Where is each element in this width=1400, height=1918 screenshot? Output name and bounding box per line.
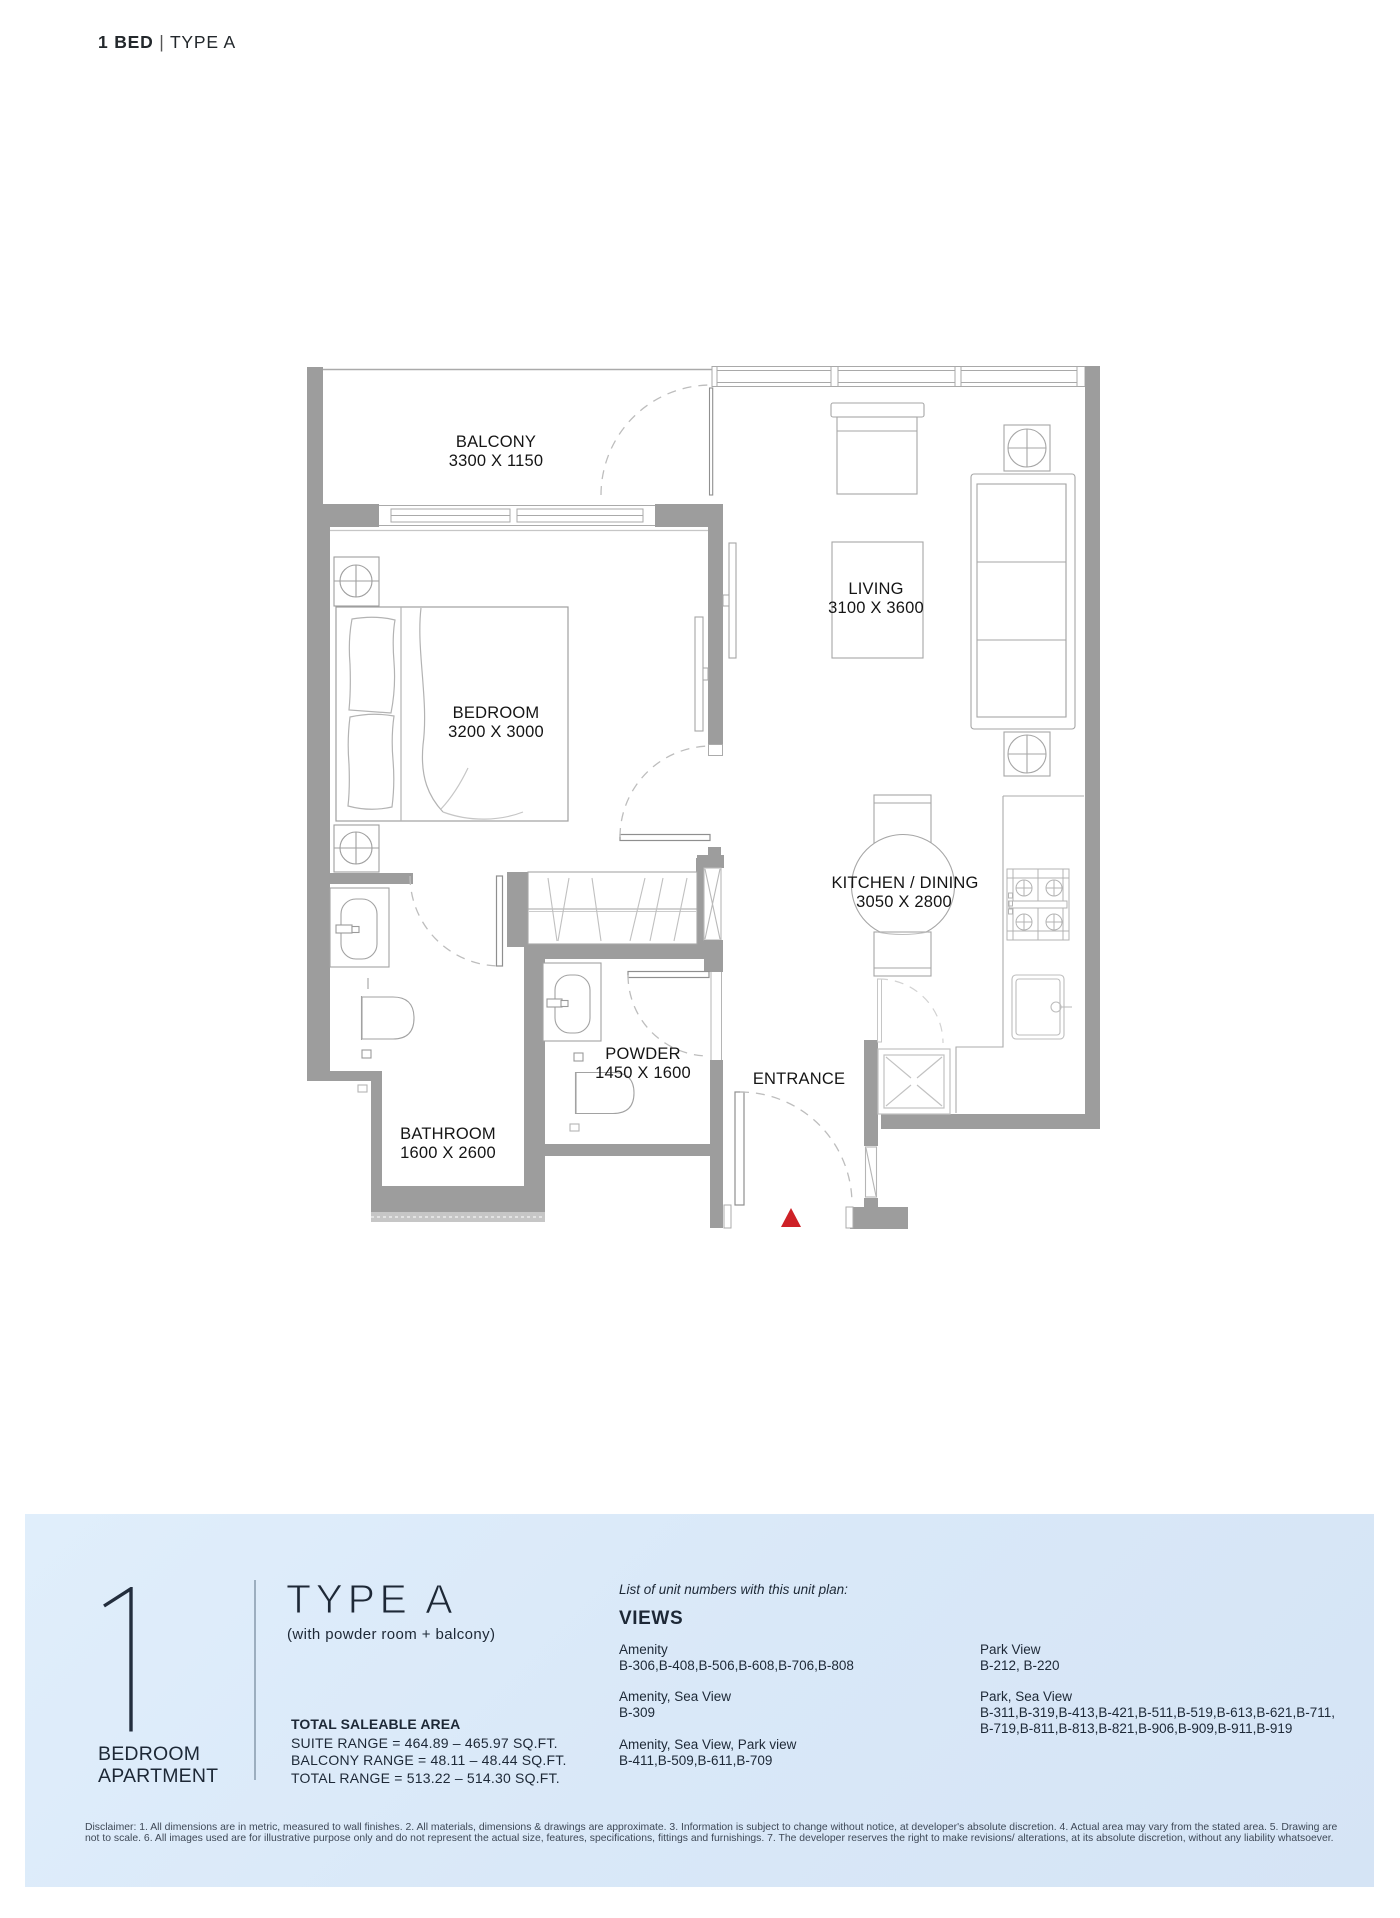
- svg-text:BATHROOM: BATHROOM: [400, 1125, 496, 1143]
- svg-text:1450 X 1600: 1450 X 1600: [595, 1064, 691, 1082]
- svg-text:3300 X 1150: 3300 X 1150: [449, 452, 544, 470]
- svg-text:KITCHEN / DINING: KITCHEN / DINING: [831, 874, 978, 892]
- svg-text:BALCONY: BALCONY: [456, 433, 536, 451]
- svg-text:POWDER: POWDER: [605, 1045, 680, 1063]
- svg-text:LIVING: LIVING: [848, 580, 903, 598]
- svg-text:BEDROOM: BEDROOM: [453, 704, 540, 722]
- svg-text:1600 X 2600: 1600 X 2600: [400, 1144, 496, 1162]
- svg-text:3100 X 3600: 3100 X 3600: [828, 599, 924, 617]
- svg-text:3200 X 3000: 3200 X 3000: [448, 723, 544, 741]
- svg-text:3050 X 2800: 3050 X 2800: [856, 893, 952, 911]
- svg-text:ENTRANCE: ENTRANCE: [753, 1070, 845, 1088]
